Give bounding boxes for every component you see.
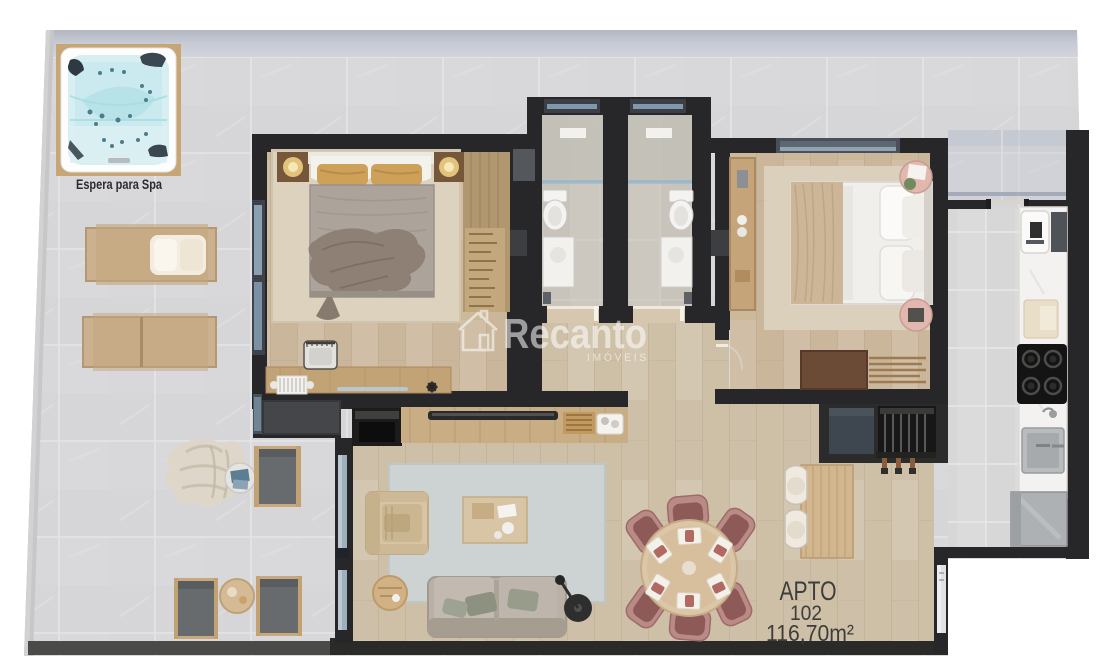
- svg-text:Recanto: Recanto: [503, 310, 647, 357]
- svg-text:Espera para Spa: Espera para Spa: [76, 177, 162, 192]
- svg-text:116,70m²: 116,70m²: [766, 620, 854, 646]
- svg-text:IMÓVEIS: IMÓVEIS: [587, 351, 649, 364]
